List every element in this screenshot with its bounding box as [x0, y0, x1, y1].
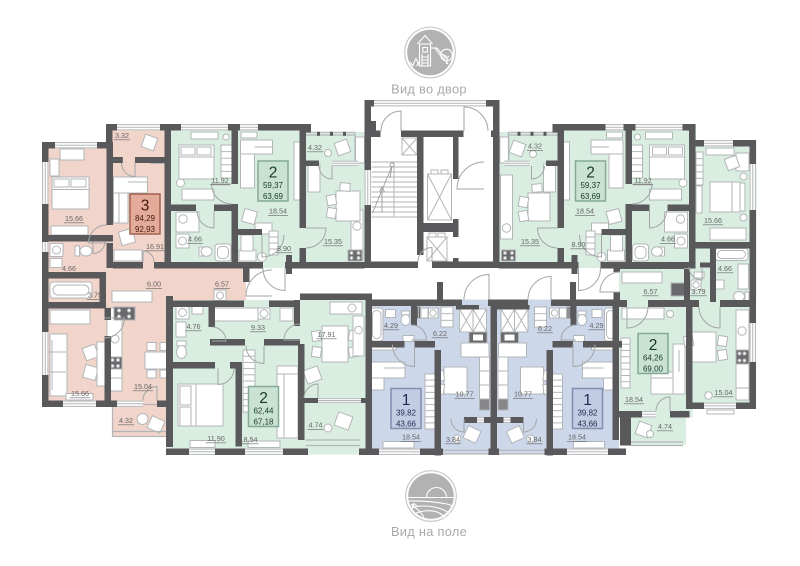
- svg-text:15.35: 15.35: [521, 237, 539, 246]
- svg-text:4.32: 4.32: [119, 416, 133, 425]
- svg-text:18.54: 18.54: [576, 207, 594, 216]
- svg-text:15.04: 15.04: [134, 382, 152, 391]
- svg-text:6.22: 6.22: [538, 324, 552, 333]
- svg-text:3.79: 3.79: [88, 291, 102, 300]
- svg-text:11.92: 11.92: [211, 176, 228, 185]
- svg-text:15.35: 15.35: [324, 237, 342, 246]
- svg-text:1: 1: [583, 392, 592, 409]
- svg-text:11.92: 11.92: [634, 176, 651, 185]
- svg-text:15.04: 15.04: [715, 388, 733, 397]
- svg-text:8.90: 8.90: [572, 240, 586, 249]
- svg-text:Вид на поле: Вид на поле: [391, 524, 467, 539]
- svg-text:4.66: 4.66: [718, 264, 732, 273]
- svg-text:8.90: 8.90: [277, 244, 291, 253]
- svg-text:16.91: 16.91: [146, 242, 164, 251]
- svg-text:6.57: 6.57: [215, 280, 229, 289]
- svg-text:64,26: 64,26: [643, 354, 664, 363]
- svg-text:4.29: 4.29: [384, 321, 398, 330]
- svg-text:2: 2: [586, 165, 595, 182]
- svg-text:Вид во двор: Вид во двор: [391, 82, 467, 97]
- svg-text:4.66: 4.66: [188, 235, 202, 244]
- svg-text:4.32: 4.32: [528, 142, 542, 151]
- svg-text:4.76: 4.76: [187, 322, 201, 331]
- svg-text:18.54: 18.54: [625, 395, 643, 404]
- svg-text:3.79: 3.79: [692, 287, 706, 296]
- svg-text:3: 3: [141, 198, 150, 215]
- svg-text:4.32: 4.32: [308, 143, 322, 152]
- svg-text:1: 1: [402, 392, 411, 409]
- svg-text:18.54: 18.54: [568, 433, 586, 442]
- svg-text:18.54: 18.54: [240, 435, 258, 444]
- svg-text:69,00: 69,00: [643, 365, 664, 374]
- svg-text:10.77: 10.77: [456, 390, 474, 399]
- svg-text:4.74: 4.74: [658, 422, 672, 431]
- svg-text:43,66: 43,66: [577, 420, 598, 429]
- svg-text:4.74: 4.74: [309, 421, 323, 430]
- svg-text:18.54: 18.54: [269, 207, 287, 216]
- svg-text:3.84: 3.84: [528, 435, 542, 444]
- svg-text:39,82: 39,82: [396, 409, 417, 418]
- svg-text:43,66: 43,66: [396, 420, 417, 429]
- svg-text:18.54: 18.54: [402, 433, 420, 442]
- svg-text:10.77: 10.77: [514, 390, 532, 399]
- svg-text:2: 2: [259, 390, 268, 407]
- svg-text:3.32: 3.32: [115, 131, 129, 140]
- svg-text:59,37: 59,37: [263, 181, 284, 190]
- svg-text:3.84: 3.84: [446, 435, 460, 444]
- svg-text:2: 2: [269, 165, 278, 182]
- svg-text:15.66: 15.66: [71, 389, 89, 398]
- svg-text:63,69: 63,69: [580, 192, 601, 201]
- svg-text:15.66: 15.66: [65, 214, 83, 223]
- svg-text:17.91: 17.91: [318, 330, 336, 339]
- svg-text:4.66: 4.66: [661, 235, 675, 244]
- svg-text:11.90: 11.90: [207, 434, 224, 443]
- svg-text:39,82: 39,82: [577, 409, 598, 418]
- svg-text:63,69: 63,69: [263, 192, 284, 201]
- svg-text:9.33: 9.33: [251, 323, 265, 332]
- svg-text:6.57: 6.57: [644, 287, 658, 296]
- svg-text:4.29: 4.29: [590, 321, 604, 330]
- svg-text:4.66: 4.66: [62, 264, 76, 273]
- svg-text:84,29: 84,29: [135, 214, 156, 223]
- svg-text:6.00: 6.00: [147, 280, 161, 289]
- svg-text:6.22: 6.22: [433, 329, 447, 338]
- svg-text:62,44: 62,44: [253, 407, 274, 416]
- svg-text:67,18: 67,18: [253, 418, 274, 427]
- svg-text:59,37: 59,37: [580, 181, 601, 190]
- svg-text:92,93: 92,93: [135, 225, 156, 234]
- svg-text:15.66: 15.66: [704, 216, 722, 225]
- svg-text:2: 2: [649, 337, 658, 354]
